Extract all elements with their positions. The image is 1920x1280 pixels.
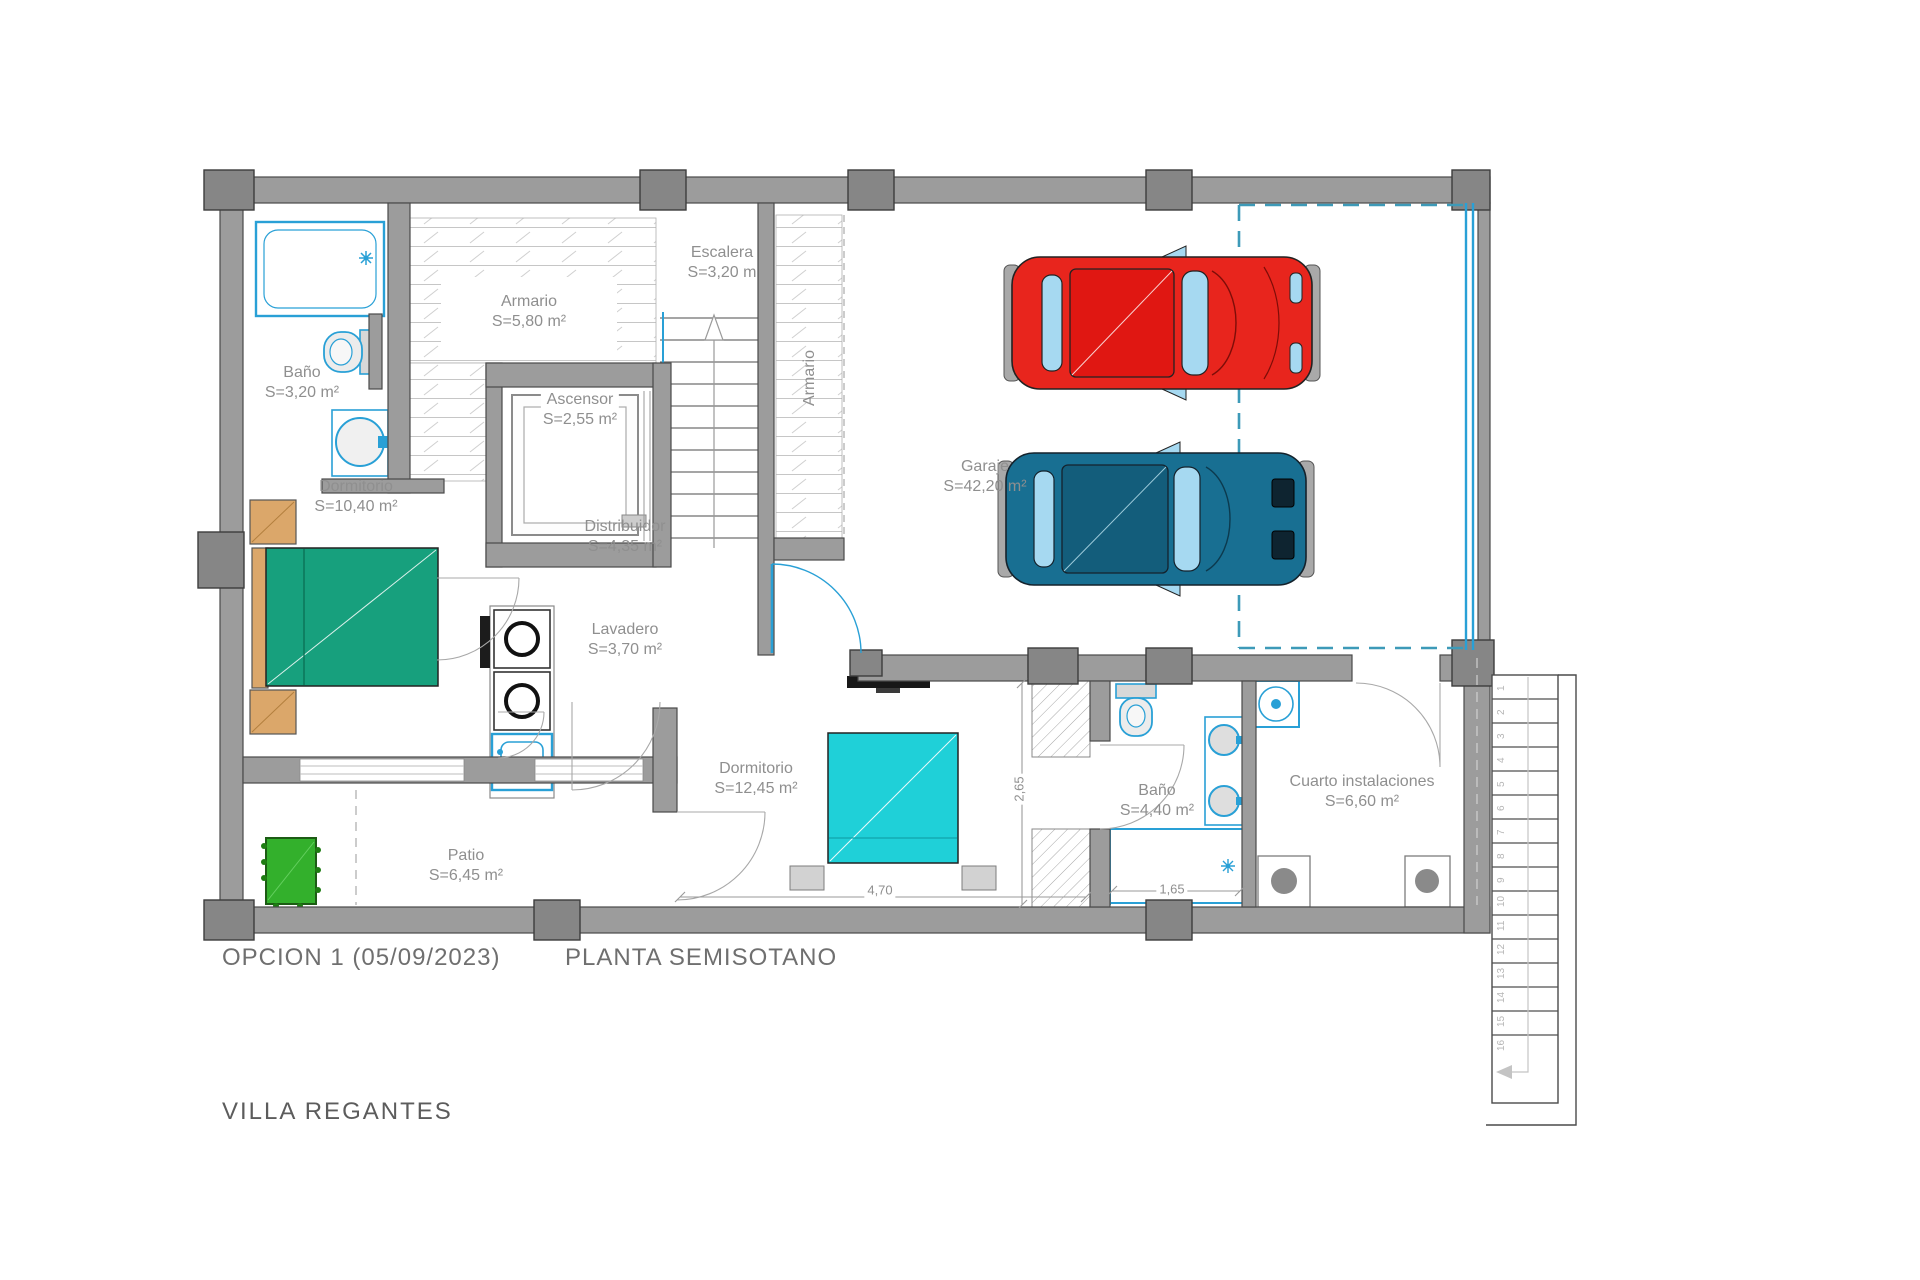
room-label-ascensor: AscensorS=2,55 m² (541, 390, 619, 430)
shower-head-icon (359, 251, 373, 265)
stair-step-number: 9 (1496, 877, 1507, 883)
stair-step-number: 11 (1496, 920, 1507, 931)
washbasin-icon (332, 410, 388, 476)
dimension-dorm2-width: 4,70 (864, 883, 895, 898)
washing-machine-icon (1253, 681, 1299, 727)
machine-icon (1258, 856, 1310, 907)
bed-double-icon (828, 733, 958, 863)
washer-icon (494, 610, 550, 668)
room-label-bano1: BañoS=3,20 m² (265, 363, 339, 403)
floor-plan-drawing: 12345678910111213141516 (0, 0, 1920, 1280)
exterior-stairs: 12345678910111213141516 (1486, 675, 1576, 1125)
floor-plan-page: 12345678910111213141516 BañoS=3,20 m² Ar… (0, 0, 1920, 1280)
room-label-cuarto: Cuarto instalacionesS=6,60 m² (1290, 772, 1435, 812)
machine-icon (1405, 856, 1450, 907)
stair-step-number: 14 (1496, 991, 1507, 1003)
room-label-dormitorio2: DormitorioS=12,45 m² (714, 759, 797, 799)
room-label-armario1: ArmarioS=5,80 m² (492, 292, 566, 332)
double-washbasin-icon (1205, 717, 1245, 825)
stair-step-number: 8 (1496, 853, 1507, 859)
shower-head-icon (1221, 859, 1235, 873)
car-red-icon (1004, 246, 1320, 400)
stair-step-number: 7 (1496, 829, 1507, 835)
bathtub-icon (256, 222, 384, 316)
bed-double-icon (252, 548, 438, 688)
project-name: VILLA REGANTES (222, 1098, 453, 1126)
stair-step-number: 1 (1496, 685, 1507, 691)
car-blue-icon (998, 442, 1314, 596)
plant-table-icon (261, 838, 321, 909)
stair-step-number: 15 (1496, 1015, 1507, 1027)
room-label-escalera: EscaleraS=3,20 m (688, 243, 757, 283)
stair-step-number: 5 (1496, 781, 1507, 787)
stair-step-number: 4 (1496, 757, 1507, 763)
stair-step-number: 10 (1496, 895, 1507, 907)
room-label-distribuidor: DistribuidorS=4,35 m² (585, 517, 666, 557)
room-label-dormitorio1: DormitorioS=10,40 m² (314, 477, 397, 517)
option-date-label: OPCION 1 (05/09/2023) (222, 944, 500, 972)
dryer-icon (494, 672, 550, 730)
interior-stairs-icon (660, 312, 764, 548)
stair-step-number: 16 (1496, 1039, 1507, 1051)
garage-entry-door (772, 564, 861, 653)
garage-door-glass (1466, 203, 1473, 650)
nightstand-icon (790, 866, 824, 890)
stair-step-number: 13 (1496, 967, 1507, 979)
room-label-garaje: GarajeS=42,20 m² (943, 457, 1026, 497)
nightstand-icon (962, 866, 996, 890)
room-label-lavadero: LavaderoS=3,70 m² (588, 620, 662, 660)
plan-title: PLANTA SEMISOTANO (565, 944, 837, 972)
nightstand-icon (250, 500, 296, 544)
dimension-bano2-width: 1,65 (1156, 882, 1187, 897)
stair-step-number: 3 (1496, 733, 1507, 739)
stair-step-number: 12 (1496, 943, 1507, 955)
room-label-armario2: Armario (800, 350, 820, 406)
toilet-icon (1116, 684, 1156, 736)
stair-step-number: 2 (1496, 709, 1507, 715)
nightstand-icon (250, 690, 296, 734)
bano2-closet-hatches (1032, 681, 1090, 907)
stair-step-number: 6 (1496, 805, 1507, 811)
dimension-bano2-depth: 2,65 (1012, 773, 1027, 804)
room-label-patio: PatioS=6,45 m² (429, 846, 503, 886)
room-label-bano2: BañoS=4,40 m² (1120, 781, 1194, 821)
